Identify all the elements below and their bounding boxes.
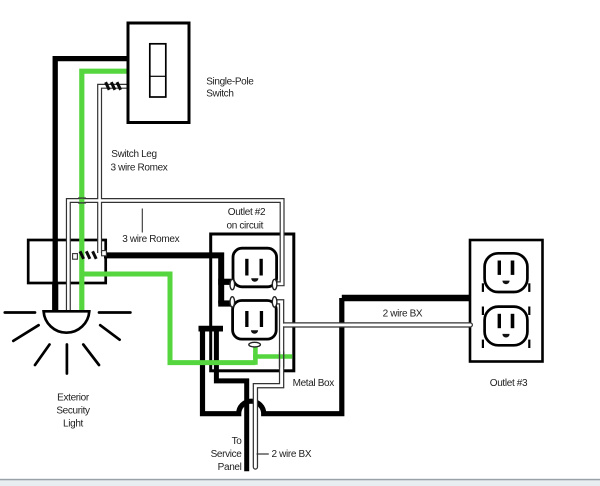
svg-text:To: To	[232, 436, 243, 447]
svg-text:on circuit: on circuit	[227, 220, 264, 231]
svg-text:3 wire Romex: 3 wire Romex	[111, 162, 168, 173]
svg-text:Exterior: Exterior	[57, 393, 90, 404]
svg-text:Metal Box: Metal Box	[293, 378, 335, 389]
svg-text:Light: Light	[63, 419, 84, 430]
svg-text:2 wire BX: 2 wire BX	[383, 308, 423, 319]
svg-text:Security: Security	[56, 406, 90, 417]
svg-text:Switch Leg: Switch Leg	[111, 149, 156, 160]
svg-text:Outlet #3: Outlet #3	[490, 378, 528, 389]
svg-text:2 wire BX: 2 wire BX	[272, 449, 312, 460]
svg-text:3 wire Romex: 3 wire Romex	[122, 234, 179, 245]
svg-text:Outlet #2: Outlet #2	[228, 207, 266, 218]
svg-text:Service: Service	[211, 449, 243, 460]
svg-text:Switch: Switch	[206, 89, 233, 100]
svg-text:Panel: Panel	[218, 462, 242, 473]
svg-text:Single-Pole: Single-Pole	[206, 77, 254, 88]
